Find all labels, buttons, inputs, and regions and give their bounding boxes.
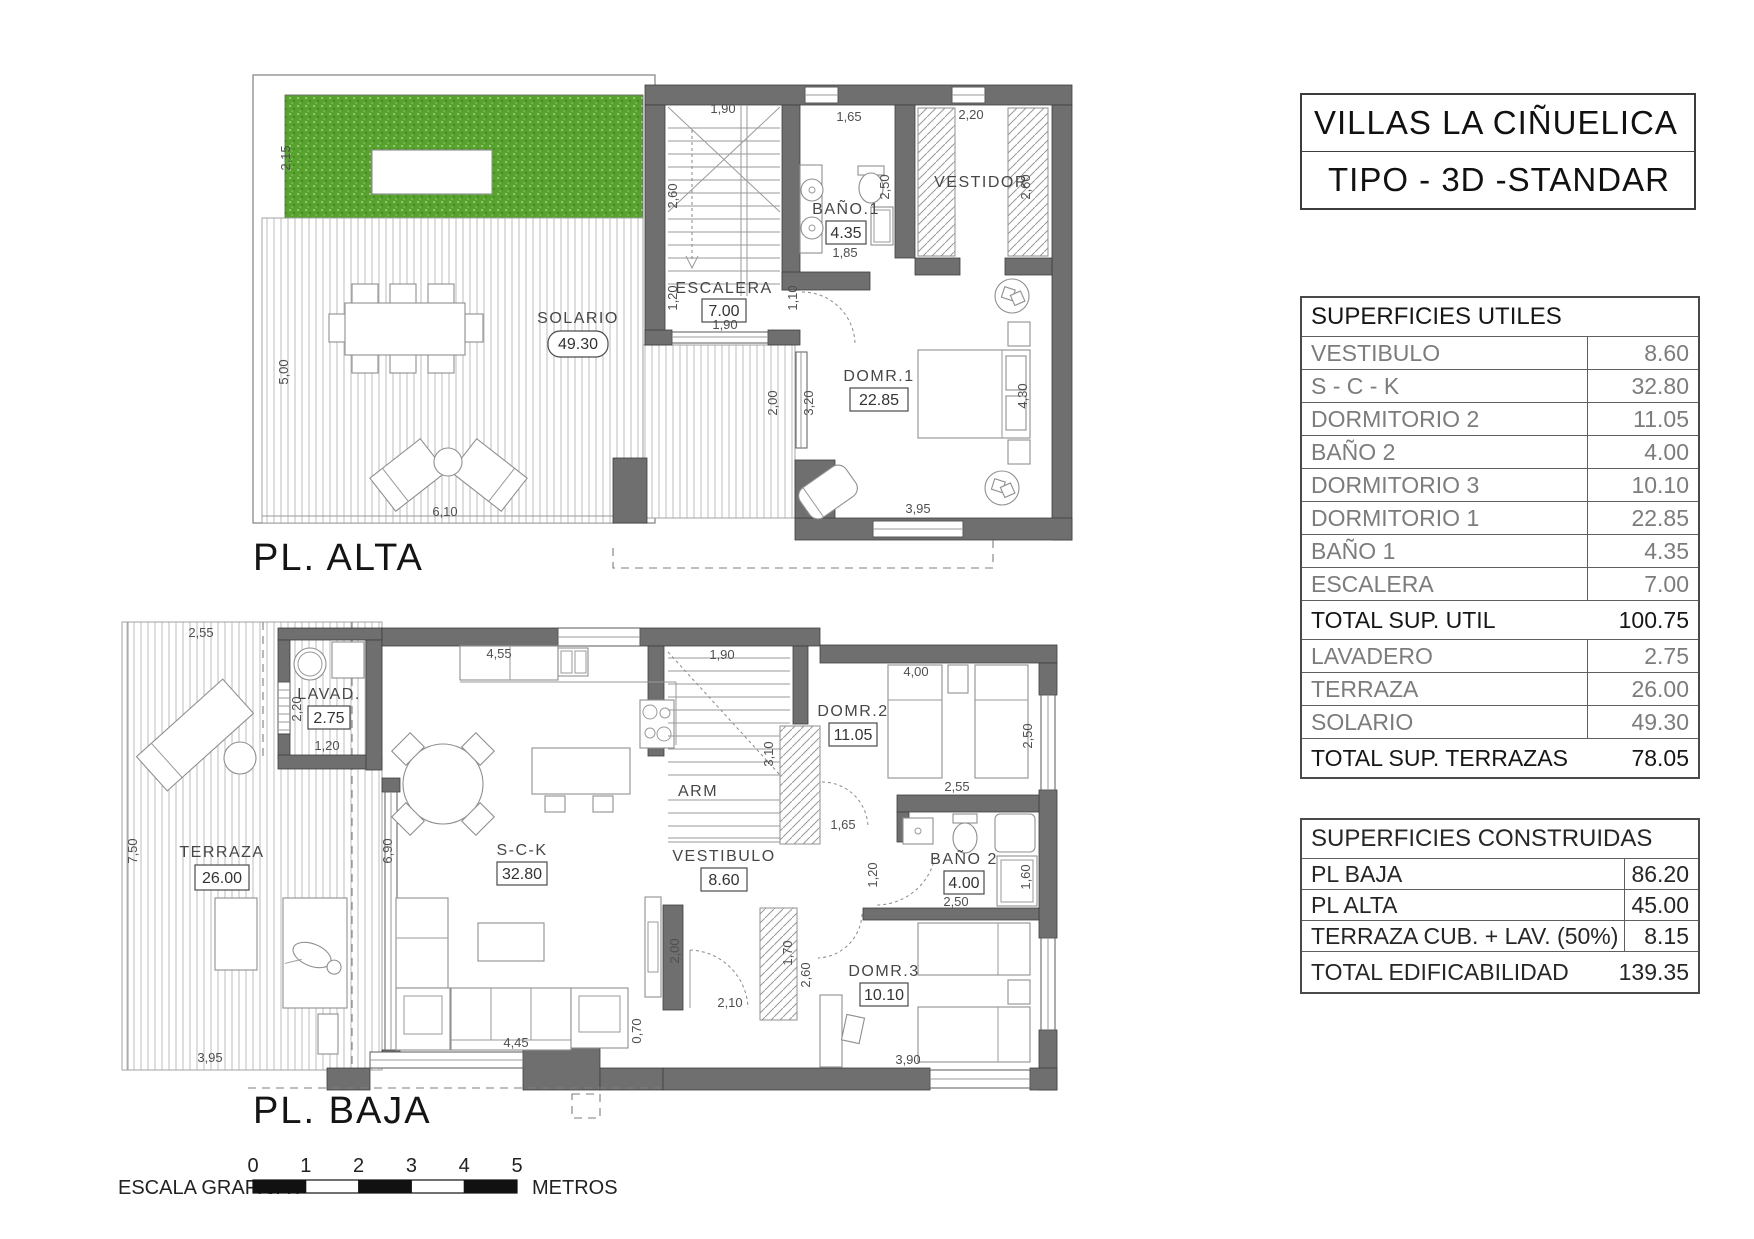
svg-text:2: 2: [353, 1155, 364, 1177]
svg-text:2,50: 2,50: [1020, 723, 1035, 748]
title-block: VILLAS LA CIÑUELICA TIPO - 3D -STANDAR: [1300, 93, 1696, 210]
alta-vestidor-wardrobes: [918, 108, 1048, 313]
alta-landing-deck: [643, 345, 795, 518]
svg-text:1,70: 1,70: [780, 940, 795, 965]
svg-text:1,20: 1,20: [314, 738, 339, 753]
table-row: PL ALTA45.00: [1302, 889, 1698, 920]
table-row: SOLARIO49.30: [1302, 705, 1698, 738]
table-row: DORMITORIO 310.10: [1302, 468, 1698, 501]
table-row: S - C - K32.80: [1302, 369, 1698, 402]
alta-plan-title: PL. ALTA: [253, 537, 424, 579]
svg-text:2,50: 2,50: [877, 174, 892, 199]
table-total-row: TOTAL SUP. TERRAZAS78.05: [1302, 738, 1698, 777]
svg-text:7,50: 7,50: [125, 838, 140, 863]
superficies-construidas-table: SUPERFICIES CONSTRUIDAS PL BAJA86.20 PL …: [1300, 818, 1700, 994]
baja-terraza-label: TERRAZA: [179, 844, 264, 861]
svg-text:2,10: 2,10: [717, 995, 742, 1010]
architectural-sheet: SOLARIO 49.30 ESCALERA 7.00 BAÑO.1 4.35 …: [0, 0, 1754, 1239]
baja-living-furniture: [396, 897, 661, 1050]
baja-dorm3-label: DOMR.3: [848, 963, 919, 980]
scale-unit: METROS: [532, 1177, 618, 1199]
plan-baja: LAVAD. 2.75 TERRAZA 26.00 S-C-K 32.80 AR…: [122, 622, 1057, 1132]
svg-text:4,00: 4,00: [903, 664, 928, 679]
table-header: SUPERFICIES UTILES: [1302, 298, 1698, 336]
svg-text:3,95: 3,95: [197, 1050, 222, 1065]
baja-vestibulo-label: VESTIBULO: [672, 848, 775, 865]
svg-text:2,60: 2,60: [665, 183, 680, 208]
alta-dorm1-furniture: [795, 292, 1030, 523]
table-total-row: TOTAL EDIFICABILIDAD139.35: [1302, 951, 1698, 992]
table-total-row: TOTAL SUP. UTIL100.75: [1302, 600, 1698, 639]
svg-text:2,55: 2,55: [944, 779, 969, 794]
svg-text:1,65: 1,65: [830, 817, 855, 832]
project-title: VILLAS LA CIÑUELICA: [1302, 95, 1694, 151]
svg-text:5: 5: [511, 1155, 522, 1177]
svg-text:1,20: 1,20: [865, 862, 880, 887]
svg-text:22.85: 22.85: [859, 392, 899, 409]
alta-dashed-outline: [613, 540, 993, 568]
svg-text:1,60: 1,60: [1018, 864, 1033, 889]
svg-text:4.35: 4.35: [830, 225, 861, 242]
svg-text:2,15: 2,15: [278, 145, 293, 170]
svg-text:32.80: 32.80: [502, 866, 542, 883]
svg-text:3: 3: [406, 1155, 417, 1177]
project-type: TIPO - 3D -STANDAR: [1302, 151, 1694, 208]
svg-text:1,20: 1,20: [665, 285, 680, 310]
svg-text:2,50: 2,50: [943, 894, 968, 909]
svg-text:3,95: 3,95: [905, 501, 930, 516]
svg-text:2,00: 2,00: [765, 390, 780, 415]
superficies-utiles-table: SUPERFICIES UTILES VESTIBULO8.60 S - C -…: [1300, 296, 1700, 779]
baja-dorm2-label: DOMR.2: [817, 703, 888, 720]
table-row: BAÑO 14.35: [1302, 534, 1698, 567]
svg-text:1,65: 1,65: [836, 109, 861, 124]
table-row: DORMITORIO 211.05: [1302, 402, 1698, 435]
svg-text:2,60: 2,60: [798, 962, 813, 987]
svg-text:2,20: 2,20: [289, 696, 304, 721]
table-row: LAVADERO2.75: [1302, 639, 1698, 672]
svg-text:1,90: 1,90: [712, 317, 737, 332]
baja-bano2-label: BAÑO 2: [930, 848, 998, 868]
baja-sck-label: S-C-K: [496, 842, 547, 859]
svg-text:1,10: 1,10: [785, 285, 800, 310]
svg-text:11.05: 11.05: [834, 727, 873, 744]
svg-text:3,10: 3,10: [761, 741, 776, 766]
svg-text:2,20: 2,20: [958, 107, 983, 122]
svg-text:4,30: 4,30: [1015, 383, 1030, 408]
svg-text:2.75: 2.75: [313, 710, 344, 727]
alta-solario-label: SOLARIO: [537, 310, 619, 327]
svg-text:0,70: 0,70: [629, 1018, 644, 1043]
svg-text:4,45: 4,45: [503, 1035, 528, 1050]
table-row: BAÑO 24.00: [1302, 435, 1698, 468]
svg-text:4: 4: [459, 1155, 470, 1177]
baja-lavadero-label: LAVAD.: [297, 686, 361, 703]
svg-text:1,90: 1,90: [709, 647, 734, 662]
svg-text:1,85: 1,85: [832, 245, 857, 260]
plan-alta: SOLARIO 49.30 ESCALERA 7.00 BAÑO.1 4.35 …: [253, 75, 1072, 579]
svg-text:49.30: 49.30: [558, 336, 598, 353]
svg-text:8.60: 8.60: [708, 872, 739, 889]
svg-text:6,90: 6,90: [380, 838, 395, 863]
alta-skylight: [372, 150, 492, 194]
baja-dorm3-furniture: [818, 914, 1030, 1067]
table-row: TERRAZA26.00: [1302, 672, 1698, 705]
svg-text:3,20: 3,20: [801, 390, 816, 415]
alta-escalera-label: ESCALERA: [675, 280, 772, 297]
graphic-scale: ESCALA GRAFICA : 0 1 2 3 4 5 METROS: [118, 1155, 618, 1199]
svg-text:0: 0: [247, 1155, 258, 1177]
alta-staircase: [668, 105, 780, 296]
baja-arm-label: ARM: [678, 783, 718, 800]
alta-vestidor-label: VESTIDOR: [934, 174, 1028, 191]
table-row: TERRAZA CUB. + LAV. (50%)8.15: [1302, 920, 1698, 951]
svg-text:2,60: 2,60: [1018, 174, 1033, 199]
svg-text:26.00: 26.00: [202, 870, 242, 887]
svg-text:2,00: 2,00: [667, 938, 682, 963]
svg-text:4,55: 4,55: [486, 646, 511, 661]
svg-text:3,90: 3,90: [895, 1052, 920, 1067]
baja-plan-title: PL. BAJA: [253, 1090, 432, 1132]
table-row: DORMITORIO 122.85: [1302, 501, 1698, 534]
baja-dorm2-wardrobe: [780, 726, 820, 844]
svg-text:6,10: 6,10: [432, 504, 457, 519]
svg-text:1: 1: [300, 1155, 311, 1177]
table-row: VESTIBULO8.60: [1302, 336, 1698, 369]
svg-text:5,00: 5,00: [276, 359, 291, 384]
alta-dorm1-label: DOMR.1: [843, 368, 914, 385]
svg-text:1,90: 1,90: [710, 101, 735, 116]
svg-text:10.10: 10.10: [864, 987, 904, 1004]
baja-kitchen: [392, 646, 676, 835]
svg-text:4.00: 4.00: [948, 875, 979, 892]
table-row: ESCALERA7.00: [1302, 567, 1698, 600]
table-header: SUPERFICIES CONSTRUIDAS: [1302, 820, 1698, 858]
svg-text:2,55: 2,55: [188, 625, 213, 640]
alta-bano1-label: BAÑO.1: [812, 198, 880, 218]
table-row: PL BAJA86.20: [1302, 858, 1698, 889]
